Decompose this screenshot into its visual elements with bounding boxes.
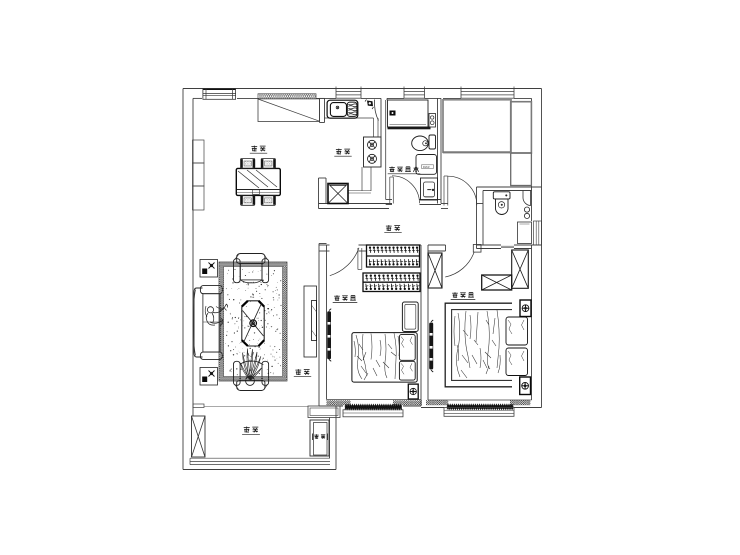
svg-text:FM-R: FM-R (423, 165, 430, 169)
